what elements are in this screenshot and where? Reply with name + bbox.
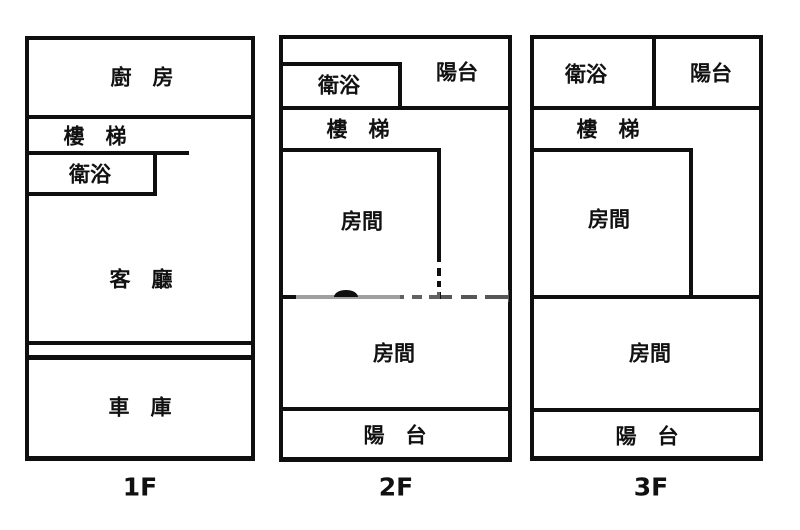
watermark-mark (334, 290, 358, 297)
watermark-line-gap (404, 295, 412, 301)
watermark-line-gap (477, 295, 485, 301)
wall-outer-left (25, 36, 29, 461)
wall-room2-top (530, 295, 763, 299)
wall-garage-top (25, 355, 255, 360)
wall-balcony-top (279, 407, 512, 411)
floorplan-canvas: 廚 房 樓 梯 衛浴 客 廳 車 庫 1F 衛浴 陽台 樓 梯 房間 房間 陽 … (0, 0, 800, 530)
room-label-balcony-top: 陽台 (436, 63, 478, 84)
room-label-garage: 車 庫 (109, 398, 172, 419)
wall-bath-balcony-divider (652, 35, 656, 110)
floor-label-3f: 3F (634, 475, 668, 500)
room-label-room-1: 房間 (341, 212, 383, 233)
wall-outer-left (279, 35, 283, 461)
wall-bath-right (398, 62, 402, 110)
room-label-room-2: 房間 (373, 344, 415, 365)
wall-outer-top (279, 35, 512, 39)
wall-outer-top (25, 36, 255, 40)
wall-outer-bottom (279, 457, 512, 462)
wall-outer-right (759, 35, 763, 460)
floor-label-2f: 2F (379, 475, 413, 500)
wall-outer-right (508, 35, 512, 461)
watermark-line-gap (422, 295, 429, 301)
room-label-stairs: 樓 梯 (577, 120, 640, 141)
wall-bath-right (153, 151, 157, 196)
wall-balcony-top (530, 408, 763, 412)
room-label-stairs: 樓 梯 (64, 127, 127, 148)
wall-bath-bottom (25, 192, 157, 196)
room-label-bathroom: 衛浴 (565, 65, 607, 86)
room-label-balcony-bottom: 陽 台 (364, 426, 427, 447)
room-label-bathroom: 衛浴 (318, 76, 360, 97)
room-label-living-room: 客 廳 (110, 270, 173, 291)
room-label-room-1: 房間 (588, 210, 630, 231)
room-label-kitchen: 廚 房 (111, 68, 174, 89)
wall-room1-right (689, 148, 693, 299)
wall-bath-top (279, 62, 402, 66)
wall-stairs-bottom (530, 148, 693, 152)
watermark-line-gap (436, 276, 443, 281)
wall-kitchen-bottom (25, 115, 255, 119)
room-label-balcony-top: 陽台 (690, 64, 732, 85)
room-label-balcony-bottom: 陽 台 (616, 427, 679, 448)
wall-stairs-bottom (279, 148, 441, 152)
wall-outer-top (530, 35, 763, 39)
wall-outer-left (530, 35, 534, 460)
wall-stairs-bottom (25, 151, 189, 155)
wall-stairs-top (279, 106, 512, 110)
wall-outer-bottom (25, 456, 255, 461)
wall-outer-bottom (530, 456, 763, 461)
wall-living-bottom (25, 341, 255, 345)
wall-outer-right (251, 36, 255, 461)
watermark-line-gap (452, 295, 461, 301)
wall-stairs-top (530, 106, 763, 110)
room-label-bathroom: 衛浴 (69, 165, 111, 186)
floor-label-1f: 1F (123, 475, 157, 500)
watermark-line-gap (436, 262, 443, 268)
room-label-room-2: 房間 (629, 344, 671, 365)
room-label-stairs: 樓 梯 (327, 120, 390, 141)
